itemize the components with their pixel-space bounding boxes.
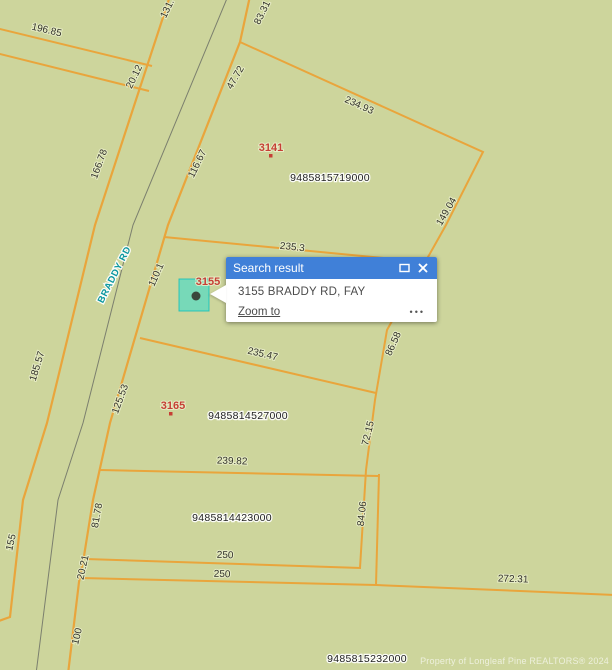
- dimension-label: 72.15: [360, 420, 377, 447]
- dimension-label: 185.57: [28, 350, 48, 383]
- dimension-label: 116.67: [186, 148, 209, 180]
- popup-body: 3155 BRADDY RD, FAY: [226, 279, 437, 298]
- close-icon: [418, 263, 428, 273]
- dimension-label: 234.93: [343, 94, 376, 117]
- dimension-label: 239.82: [217, 455, 248, 467]
- dimension-label: 47.72: [225, 64, 247, 92]
- boundary-line: [81, 578, 612, 595]
- dimension-label: 235.47: [246, 346, 279, 364]
- parcel-number-label: 3141: [259, 142, 283, 154]
- parcel-map: 196.85 131. 83.31 20.12 47.72 234.93 166…: [0, 0, 612, 670]
- popup-footer: Zoom to •••: [226, 298, 437, 318]
- dimension-label: 84.06: [356, 500, 370, 526]
- search-result-popup: Search result 3155 BRADDY RD, FAY Zoom t…: [226, 257, 437, 322]
- parcel-id-label: 9485814527000: [208, 410, 288, 422]
- boundary-line: [376, 474, 379, 585]
- maximize-icon: [399, 263, 410, 273]
- dimension-label: 235.3: [279, 241, 305, 255]
- dimension-label: 20.21: [76, 554, 92, 581]
- dimension-label: 20.12: [124, 63, 145, 91]
- dimension-label: 110.1: [147, 261, 167, 288]
- search-result-address: 3155 BRADDY RD, FAY: [238, 286, 425, 298]
- popup-title: Search result: [233, 261, 394, 275]
- parcel-id-label: 9485814423000: [192, 512, 272, 524]
- parcel-dot: [169, 412, 173, 416]
- dimension-label: 250: [217, 550, 234, 562]
- more-options-button[interactable]: •••: [410, 308, 425, 317]
- parcel-dot: [269, 154, 273, 158]
- dimension-label: 272.31: [498, 573, 529, 585]
- parcel-id-label: 9485815719000: [290, 172, 370, 184]
- map-viewport[interactable]: 196.85 131. 83.31 20.12 47.72 234.93 166…: [0, 0, 612, 670]
- parcel-id-label: 9485815232000: [327, 653, 407, 665]
- close-button[interactable]: [415, 261, 430, 276]
- parcel-number-label: 3165: [161, 400, 185, 412]
- dimension-label: 125.53: [110, 382, 131, 415]
- marker-point-icon[interactable]: [192, 292, 201, 301]
- popup-header: Search result: [226, 257, 437, 279]
- boundary-line: [140, 338, 376, 393]
- road-lines: [0, 0, 250, 670]
- dimension-labels: 196.85 131. 83.31 20.12 47.72 234.93 166…: [4, 0, 529, 646]
- dimension-label: 166.78: [89, 147, 110, 180]
- dimension-label: 131.: [159, 0, 177, 20]
- watermark: Property of Longleaf Pine REALTORS® 2024: [420, 656, 609, 666]
- dimension-label: 250: [214, 569, 231, 581]
- road-centerline: [36, 0, 228, 670]
- dimension-label: 83.31: [252, 0, 273, 27]
- zoom-to-link[interactable]: Zoom to: [238, 306, 280, 318]
- boundary-line: [100, 470, 378, 476]
- maximize-button[interactable]: [397, 261, 412, 276]
- road-edge-west: [0, 0, 170, 622]
